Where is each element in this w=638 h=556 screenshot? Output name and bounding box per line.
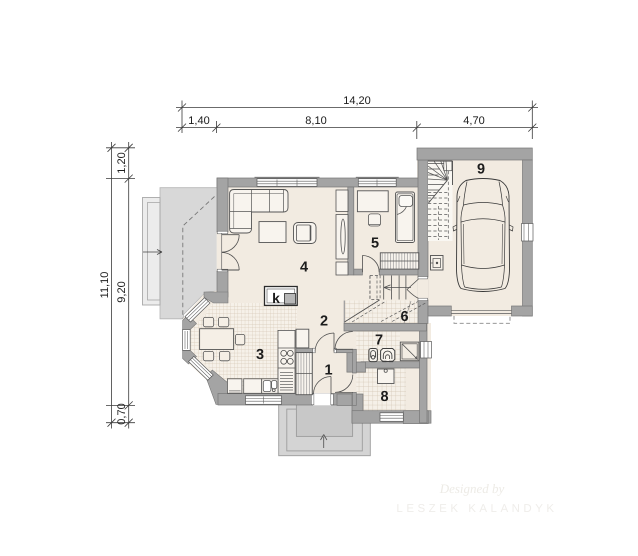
svg-text:9,20: 9,20 bbox=[116, 281, 128, 302]
svg-text:0,70: 0,70 bbox=[116, 403, 128, 424]
svg-text:1,20: 1,20 bbox=[116, 152, 128, 173]
svg-text:8: 8 bbox=[380, 389, 388, 405]
svg-text:4,70: 4,70 bbox=[463, 115, 484, 127]
svg-text:LESZEK KALANDYK: LESZEK KALANDYK bbox=[396, 503, 557, 515]
svg-text:5: 5 bbox=[371, 236, 379, 252]
svg-text:6: 6 bbox=[400, 309, 408, 325]
svg-text:8,10: 8,10 bbox=[305, 115, 326, 127]
svg-text:11,10: 11,10 bbox=[99, 272, 111, 299]
svg-text:1: 1 bbox=[324, 363, 332, 379]
svg-text:4: 4 bbox=[300, 260, 308, 276]
svg-text:Designed by: Designed by bbox=[439, 481, 505, 496]
svg-text:9: 9 bbox=[477, 162, 485, 178]
svg-text:k: k bbox=[272, 290, 280, 306]
svg-text:1,40: 1,40 bbox=[188, 115, 209, 127]
svg-text:3: 3 bbox=[256, 347, 264, 363]
svg-text:7: 7 bbox=[375, 333, 383, 349]
svg-text:2: 2 bbox=[320, 314, 328, 330]
svg-text:14,20: 14,20 bbox=[343, 95, 371, 107]
